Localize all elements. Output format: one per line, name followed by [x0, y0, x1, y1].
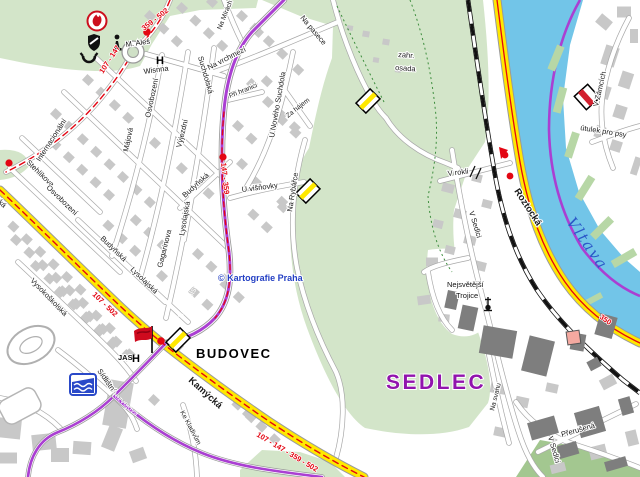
poi-label-jas: JAS — [118, 353, 133, 362]
hotel-icon[interactable]: H — [132, 353, 140, 365]
copyright-label: © Kartografie Praha — [218, 273, 304, 283]
destination-flag-marker[interactable] — [134, 326, 152, 353]
stadium-track — [1, 318, 61, 371]
street-label-osvobozeni: Osvobození — [143, 76, 160, 118]
poi-label-trojice-2: Trojice — [456, 291, 478, 300]
bus-stop-dot[interactable] — [219, 153, 226, 160]
area-label-osada: osada — [395, 63, 417, 73]
area-label-zahr: zahr. — [398, 50, 415, 60]
highlighted-building[interactable] — [566, 330, 581, 345]
fire-station-icon[interactable] — [88, 12, 107, 31]
district-label-budovec: BUDOVEC — [196, 346, 272, 361]
street-label-gagarinova: Gagarinova — [155, 228, 173, 269]
district-label-sedlec: SEDLEC — [386, 371, 486, 394]
sports-field — [0, 385, 44, 427]
street-label-suchdolska-white: Suchdolská — [176, 278, 202, 320]
map-viewport[interactable]: Internacionální 107 - 147 359 - 502 M. A… — [0, 0, 640, 477]
map-canvas[interactable]: Internacionální 107 - 147 359 - 502 M. A… — [0, 0, 640, 477]
hotel-icon[interactable]: H — [156, 55, 164, 67]
street-label-majova: Májová — [121, 126, 135, 152]
swimming-pool-icon[interactable] — [70, 374, 96, 395]
bus-stop-dot[interactable] — [507, 173, 514, 180]
bus-stop-dot[interactable] — [5, 159, 12, 166]
bus-stop-dot[interactable] — [157, 337, 165, 345]
poi-label-trojice-1: Nejsvětější — [447, 280, 485, 289]
